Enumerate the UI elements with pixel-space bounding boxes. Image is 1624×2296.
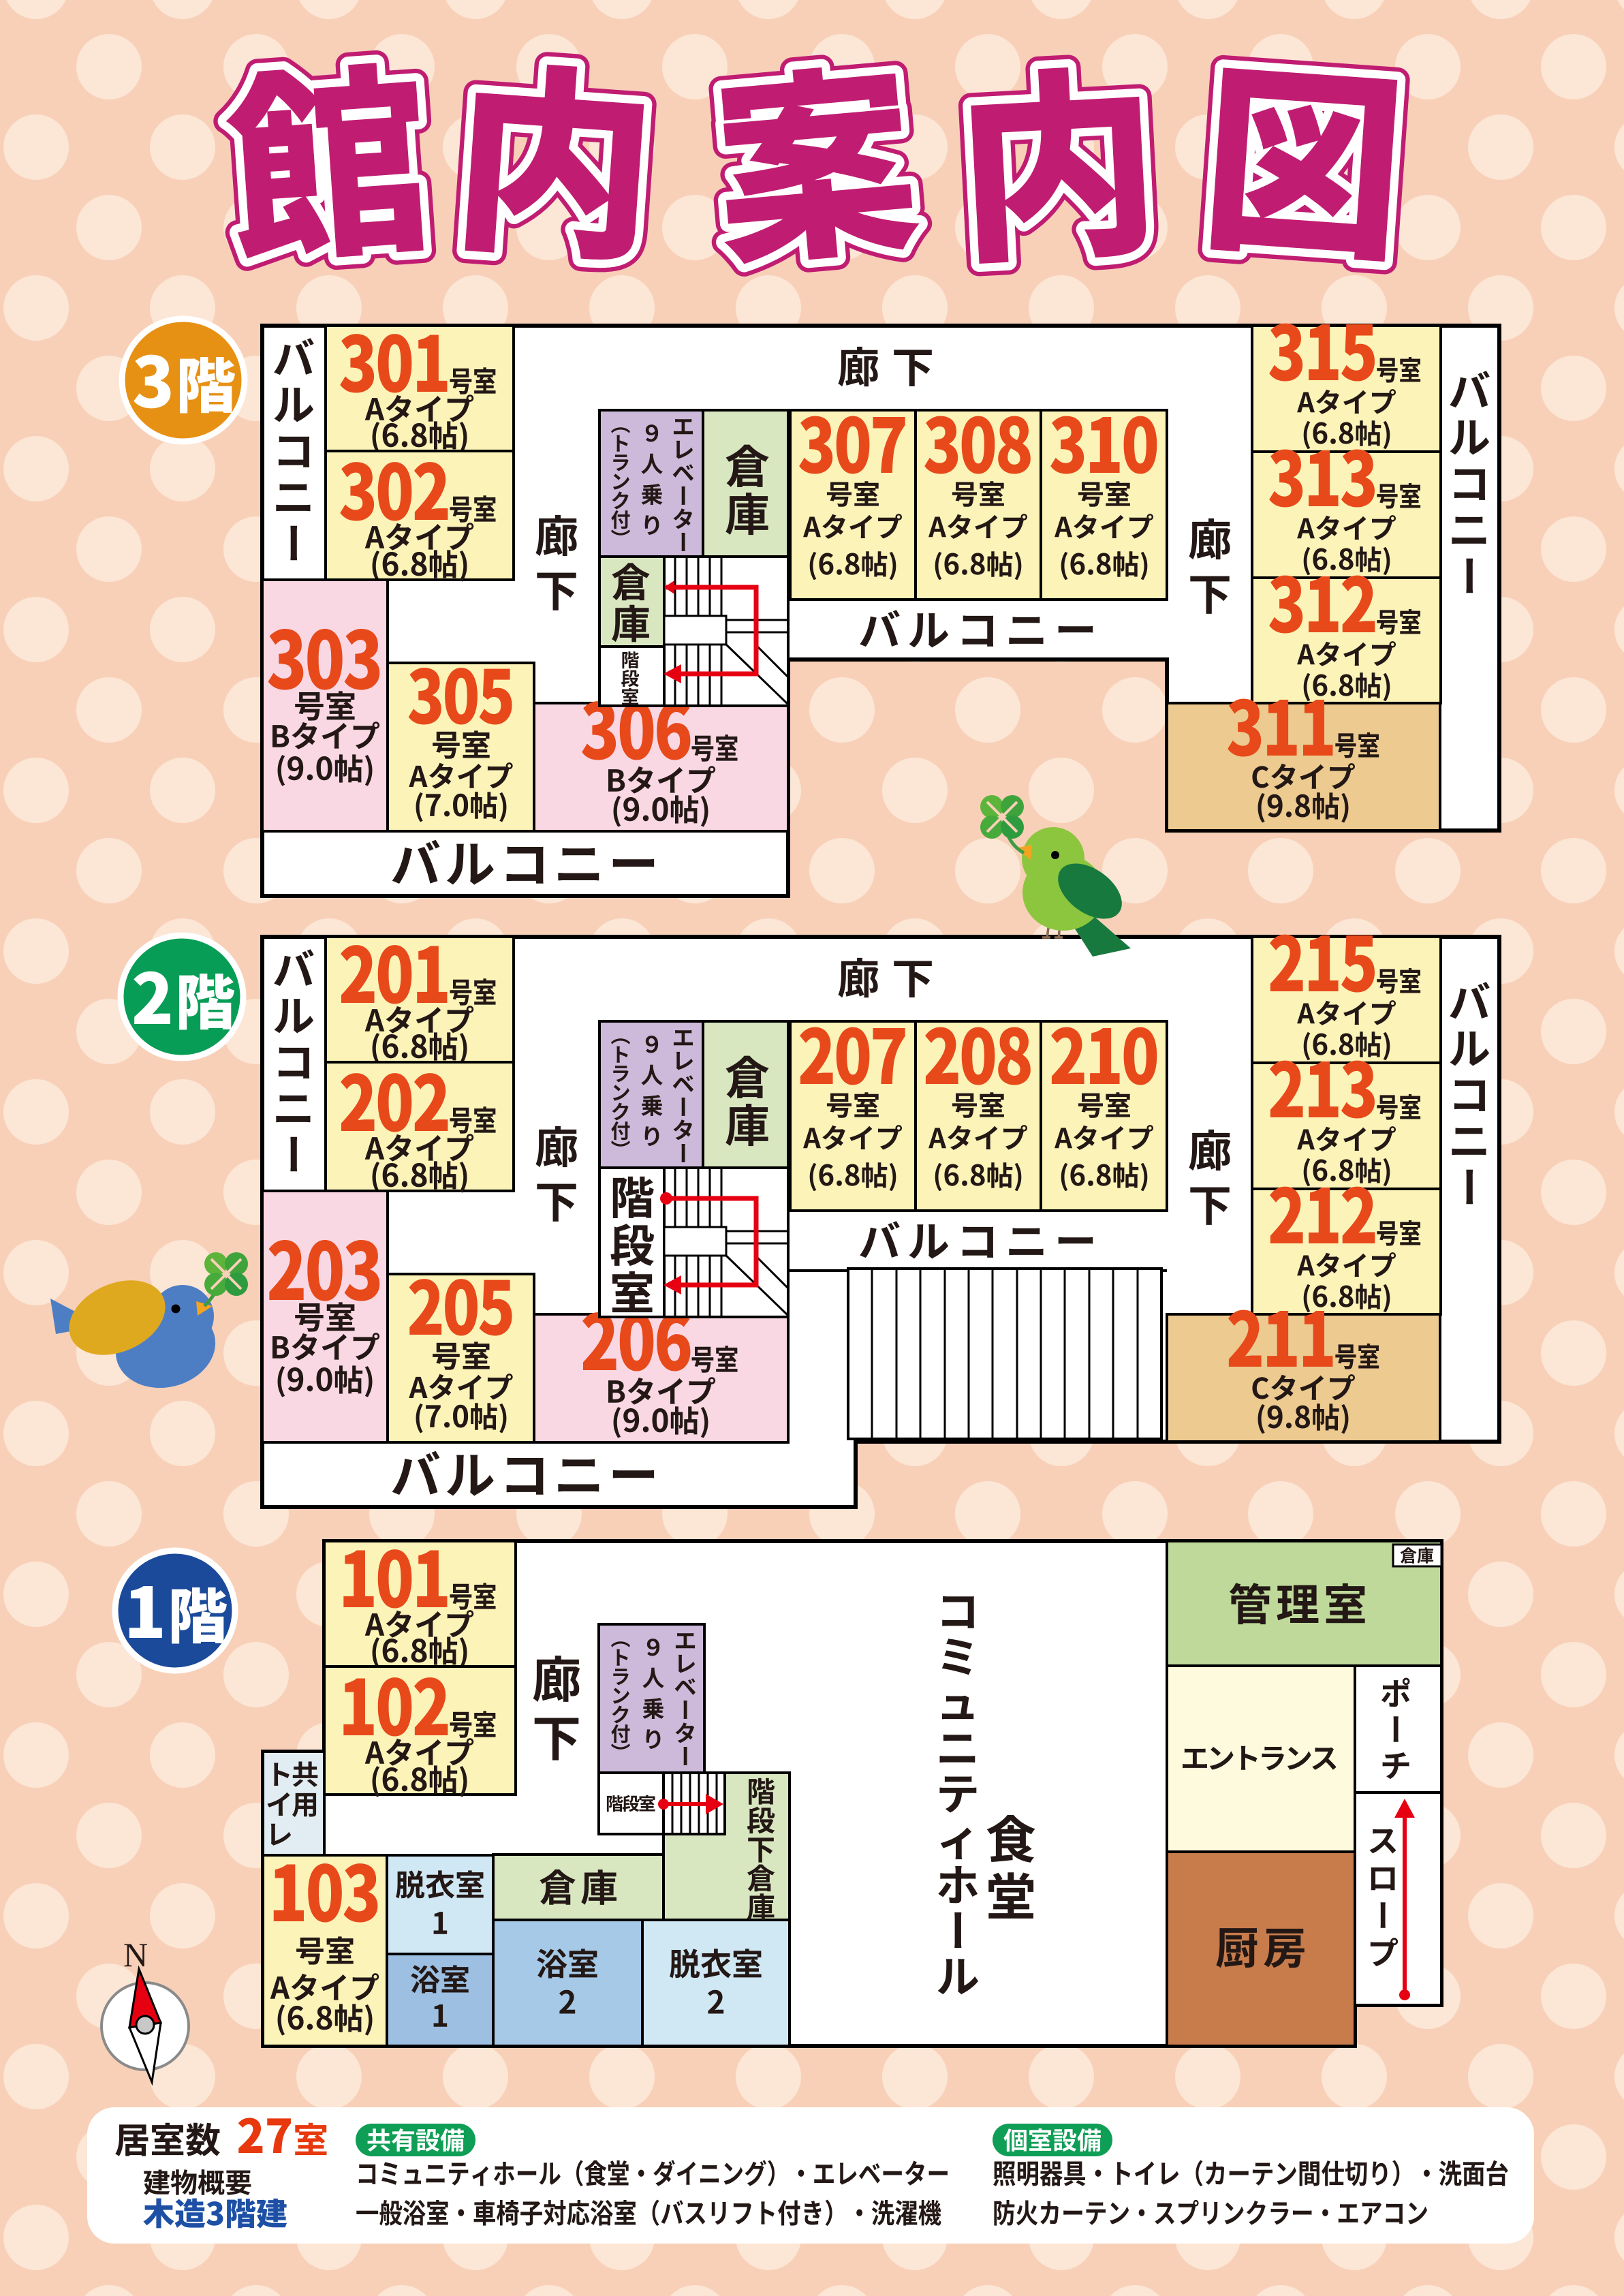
svg-text:N: N xyxy=(123,1936,148,1974)
